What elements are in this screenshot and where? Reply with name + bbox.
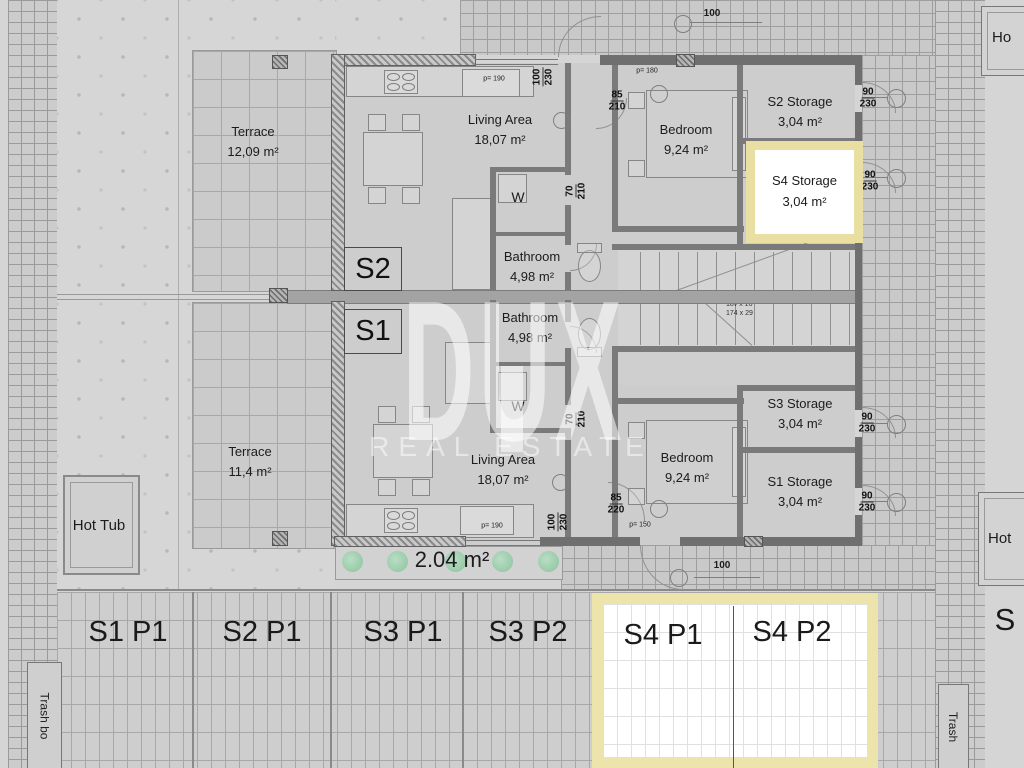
stove-icon — [384, 70, 418, 94]
burner-icon — [387, 83, 400, 91]
dim-height: 210 — [609, 102, 626, 113]
burner-icon — [402, 73, 415, 81]
parking-divider — [192, 592, 194, 768]
dim-height: 230 — [860, 99, 877, 110]
sink-icon — [460, 506, 514, 535]
unit-tag-s1: S1 — [344, 309, 402, 354]
pivot-circle — [553, 112, 570, 129]
wall-bottom-hatched — [335, 537, 465, 546]
interior-wall — [737, 447, 862, 453]
interior-wall — [737, 385, 743, 545]
hot-tub-right-top-label: Ho — [992, 29, 1011, 46]
bedroom-lower-label: Bedroom 9,24 m² — [661, 448, 714, 488]
burner-icon — [387, 511, 400, 520]
window-bottom — [465, 540, 540, 546]
interior-wall — [612, 226, 744, 232]
dim-width: 90 — [861, 87, 874, 99]
bush-icon — [538, 551, 559, 572]
wall-right — [855, 55, 862, 85]
room-area: 11,4 m² — [228, 462, 271, 482]
garden-party-line — [57, 294, 272, 300]
wall-top-hatched — [332, 55, 475, 65]
room-name: Terrace — [228, 442, 271, 462]
dim-height: 230 — [859, 424, 876, 435]
wall-right — [855, 437, 862, 488]
chair — [402, 187, 420, 204]
stove-icon — [384, 508, 418, 533]
pivot-circle — [650, 500, 668, 518]
parapet-label: p= 180 — [636, 68, 658, 75]
living-upper-label: Living Area 18,07 m² — [468, 110, 532, 150]
dim-door-bedroom-upper: 85 210 — [609, 90, 626, 113]
brick-path-top — [460, 0, 935, 55]
interior-wall — [737, 385, 862, 391]
room-name: Bedroom — [661, 448, 714, 468]
burner-icon — [387, 73, 400, 81]
interior-wall — [737, 63, 743, 248]
parking-label-neighbor: S — [995, 602, 1016, 638]
nightstand — [628, 488, 645, 505]
nightstand — [628, 92, 645, 109]
pivot-circle — [670, 569, 688, 587]
unit-tag-s2: S2 — [344, 247, 402, 291]
parapet-label: p= 190 — [483, 76, 505, 83]
s2-storage-label: S2 Storage 3,04 m² — [767, 92, 832, 132]
dim-height: 210 — [577, 183, 588, 200]
nightstand — [628, 160, 645, 177]
dining-table — [363, 132, 423, 186]
toilet-tank — [577, 243, 602, 253]
pivot-circle — [887, 169, 906, 188]
interior-wall — [612, 398, 744, 404]
wall-hatch-block — [273, 532, 287, 545]
dim-width: 100 — [532, 68, 544, 87]
stairs-wall — [612, 346, 862, 352]
wall-hatch-block — [273, 56, 287, 68]
room-area: 18,07 m² — [468, 130, 532, 150]
washer-upper-label: W — [511, 187, 524, 209]
parking-divider — [733, 606, 734, 768]
dim-width: 100 — [547, 513, 559, 532]
bush-icon — [387, 551, 408, 572]
trash-box-left: Trash bo — [27, 662, 62, 768]
burner-icon — [402, 522, 415, 531]
hot-tub-right-mid: Hot — [978, 492, 1024, 586]
room-area: 9,24 m² — [660, 140, 713, 160]
s4-storage-highlight: S4 Storage 3,04 m² — [746, 141, 863, 243]
burner-icon — [402, 83, 415, 91]
leader-line — [694, 577, 760, 578]
trash-box-left-label: Trash bo — [38, 693, 52, 740]
road-strip-left — [8, 0, 57, 768]
stairs-wall — [612, 244, 862, 250]
room-area: 9,24 m² — [661, 468, 714, 488]
dim-door-entry-lower: 100 230 — [547, 513, 570, 532]
s3-storage-label: S3 Storage 3,04 m² — [767, 394, 832, 434]
parking-divider — [462, 592, 464, 768]
room-area: 3,04 m² — [767, 492, 832, 512]
parking-label-s3p2: S3 P2 — [489, 616, 568, 649]
garden-area-top — [335, 0, 460, 55]
unit-tag-text: S2 — [355, 253, 390, 286]
interior-wall — [490, 167, 571, 172]
room-area: 3,04 m² — [767, 414, 832, 434]
room-name: Hot Tub — [73, 514, 126, 537]
room-name: S1 Storage — [767, 472, 832, 492]
wall-top — [600, 55, 677, 65]
dim-height: 220 — [608, 505, 625, 516]
interior-wall — [612, 63, 618, 232]
floor-plan-canvas: 18v x 16 174 x 29 — [0, 0, 1024, 768]
dim-width: 85 — [609, 493, 622, 505]
pivot-circle — [674, 15, 692, 33]
dim-width: 90 — [863, 170, 876, 182]
wall-hatch-block — [270, 289, 287, 302]
room-name: S4 Storage — [772, 171, 837, 192]
interior-wall — [490, 232, 571, 236]
stair-landing — [618, 352, 855, 385]
parking-top-line — [57, 589, 935, 591]
chair — [378, 406, 396, 423]
room-name: W — [511, 187, 524, 209]
dim-door-storage-s1: 90 230 — [859, 491, 876, 514]
room-name: Living Area — [468, 110, 532, 130]
parapet-label: p= 150 — [629, 522, 651, 529]
terrace-lower — [192, 302, 337, 549]
terrace-lower-label: Terrace 11,4 m² — [228, 442, 271, 482]
bush-icon — [342, 551, 363, 572]
wall-hatch-block — [745, 537, 762, 546]
interior-wall — [565, 205, 571, 245]
room-name: S2 Storage — [767, 92, 832, 112]
wall-left-lower — [332, 302, 344, 545]
dim-height: 230 — [859, 503, 876, 514]
dim-door-entry-upper: 100 230 — [532, 68, 555, 87]
chair — [378, 479, 396, 496]
trash-box-right: Trash — [938, 684, 969, 768]
leader-line — [690, 22, 762, 23]
chair — [368, 187, 386, 204]
dim-width: 90 — [860, 412, 873, 424]
wall-bottom — [680, 537, 862, 546]
sink-icon — [462, 69, 520, 97]
s4-storage-label: S4 Storage 3,04 m² — [772, 171, 837, 213]
parking-label-s1p1: S1 P1 — [89, 616, 168, 649]
burner-icon — [402, 511, 415, 520]
brick-path-right — [862, 55, 935, 545]
trash-box-right-label: Trash — [947, 712, 961, 742]
parking-label-s3p1: S3 P1 — [364, 616, 443, 649]
room-area: 3,04 m² — [772, 192, 837, 213]
parking-divider — [330, 592, 332, 768]
pivot-circle — [887, 493, 906, 512]
room-area: 12,09 m² — [227, 142, 278, 162]
dim-height: 230 — [862, 182, 879, 193]
window-top — [475, 59, 558, 65]
dim-door-bedroom-lower: 85 220 — [608, 493, 625, 516]
dim-height: 230 — [559, 514, 570, 531]
garden-area-label: 2.04 m² — [415, 547, 490, 573]
wall-top — [694, 55, 862, 65]
chair — [368, 114, 386, 131]
hot-tub-right-top: Ho — [981, 6, 1024, 76]
road-strip-right — [935, 0, 985, 768]
hot-tub-label: Hot Tub — [73, 514, 126, 537]
pivot-circle — [887, 89, 906, 108]
bush-icon — [492, 551, 513, 572]
dim-width: 85 — [610, 90, 623, 102]
dim-height: 230 — [544, 69, 555, 86]
parking-label-s4p1: S4 P1 — [624, 619, 703, 652]
s1-storage-label: S1 Storage 3,04 m² — [767, 472, 832, 512]
dim-door-bathroom-upper: 70 210 — [565, 183, 588, 200]
terrace-upper — [192, 50, 337, 292]
wall-hatch-block — [677, 55, 694, 66]
dim-width: 90 — [860, 491, 873, 503]
dim-door-storage-s3: 90 230 — [859, 412, 876, 435]
pivot-circle — [887, 415, 906, 434]
room-area: 3,04 m² — [767, 112, 832, 132]
parapet-label: p= 190 — [481, 523, 503, 530]
burner-icon — [387, 522, 400, 531]
terrace-upper-label: Terrace 12,09 m² — [227, 122, 278, 162]
stair-note-line2: 174 x 29 — [726, 310, 753, 317]
brick-path-bottom — [561, 545, 935, 590]
room-name: S3 Storage — [767, 394, 832, 414]
pivot-circle — [650, 85, 668, 103]
wall-bottom — [540, 537, 640, 546]
chair — [402, 114, 420, 131]
parking-label-s4p2: S4 P2 — [753, 616, 832, 649]
dim-door-storage-s2: 90 230 — [860, 87, 877, 110]
parking-label-s2p1: S2 P1 — [223, 616, 302, 649]
unit-tag-text: S1 — [355, 315, 390, 348]
dim-entry-upper: 100 — [704, 8, 721, 19]
dim-door-storage-s4: 90 230 — [862, 170, 879, 193]
watermark-tagline: REAL ESTATE — [369, 431, 653, 463]
dim-width: 70 — [565, 184, 577, 197]
bedroom-upper-label: Bedroom 9,24 m² — [660, 120, 713, 160]
wall-left-upper — [332, 55, 344, 290]
dim-entry-lower: 100 — [714, 560, 731, 571]
hot-tub-right-mid-label: Hot — [988, 530, 1011, 547]
room-name: Bedroom — [660, 120, 713, 140]
room-name: Terrace — [227, 122, 278, 142]
